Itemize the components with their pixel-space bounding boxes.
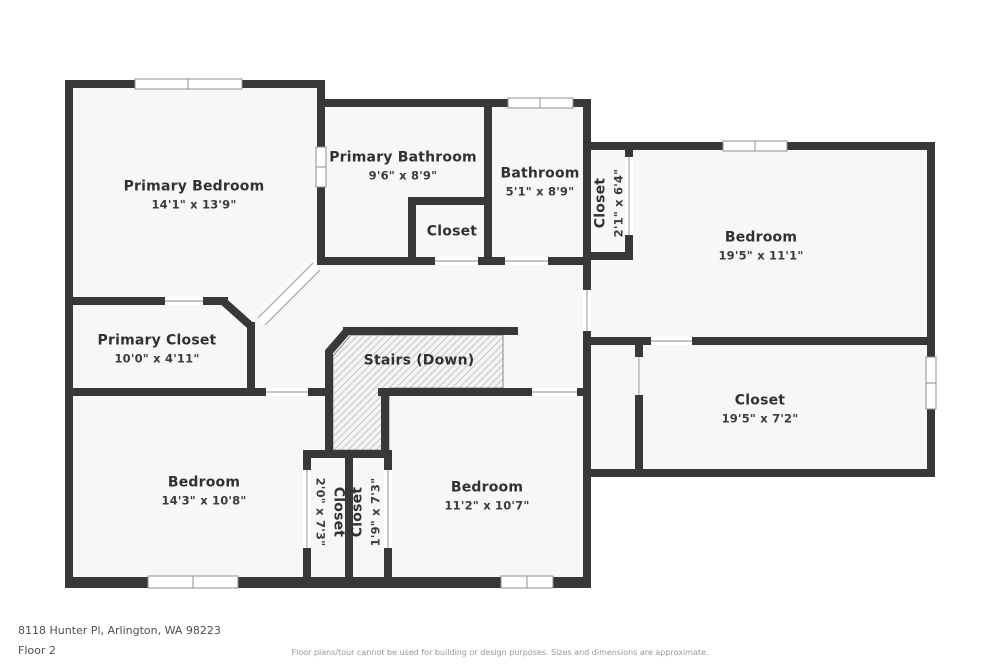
room-dims: 2'1" x 6'4" xyxy=(612,169,626,238)
room-name: Bathroom xyxy=(500,165,579,183)
room-label-closet-s2: Closet 1'9" x 7'3" xyxy=(349,478,382,547)
room-name: Closet xyxy=(427,223,477,241)
room-dims: 19'5" x 7'2" xyxy=(722,412,799,426)
floor-plan-page: Primary Bedroom 14'1" x 13'9" Primary Ba… xyxy=(0,0,1000,667)
room-name: Bedroom xyxy=(718,229,803,247)
room-dims: 5'1" x 8'9" xyxy=(500,185,579,199)
room-dims: 9'6" x 8'9" xyxy=(329,169,477,183)
room-name: Closet xyxy=(349,478,367,547)
room-dims: 10'0" x 4'11" xyxy=(98,352,217,366)
room-name: Stairs (Down) xyxy=(364,352,475,370)
disclaimer-text: Floor plans/tour cannot be used for buil… xyxy=(0,648,1000,657)
room-label-hall-closet: Closet 2'1" x 6'4" xyxy=(592,169,625,238)
room-name: Closet xyxy=(722,392,799,410)
property-address: 8118 Hunter Pl, Arlington, WA 98223 xyxy=(18,624,221,637)
room-name: Primary Bathroom xyxy=(329,149,477,167)
room-label-primary-bedroom: Primary Bedroom 14'1" x 13'9" xyxy=(124,178,265,211)
room-dims: 14'1" x 13'9" xyxy=(124,198,265,212)
room-label-primary-bathroom: Primary Bathroom 9'6" x 8'9" xyxy=(329,149,477,182)
room-label-bathroom: Bathroom 5'1" x 8'9" xyxy=(500,165,579,198)
room-name: Bedroom xyxy=(161,474,246,492)
room-dims: 2'0" x 7'3" xyxy=(313,478,327,547)
room-name: Bedroom xyxy=(444,479,529,497)
room-dims: 19'5" x 11'1" xyxy=(718,249,803,263)
room-label-stairs: Stairs (Down) xyxy=(364,352,475,370)
room-label-closet-s1: Closet 2'0" x 7'3" xyxy=(313,478,346,547)
room-name: Closet xyxy=(329,478,347,547)
room-label-bedroom-sw: Bedroom 14'3" x 10'8" xyxy=(161,474,246,507)
room-name: Primary Bedroom xyxy=(124,178,265,196)
room-label-primary-closet: Primary Closet 10'0" x 4'11" xyxy=(98,332,217,365)
room-dims: 1'9" x 7'3" xyxy=(369,478,383,547)
room-label-closet-e: Closet 19'5" x 7'2" xyxy=(722,392,799,425)
room-name: Closet xyxy=(592,169,610,238)
room-dims: 11'2" x 10'7" xyxy=(444,499,529,513)
room-dims: 14'3" x 10'8" xyxy=(161,494,246,508)
room-label-bath-closet: Closet xyxy=(427,223,477,241)
room-label-bedroom-ne: Bedroom 19'5" x 11'1" xyxy=(718,229,803,262)
room-name: Primary Closet xyxy=(98,332,217,350)
room-label-bedroom-se: Bedroom 11'2" x 10'7" xyxy=(444,479,529,512)
